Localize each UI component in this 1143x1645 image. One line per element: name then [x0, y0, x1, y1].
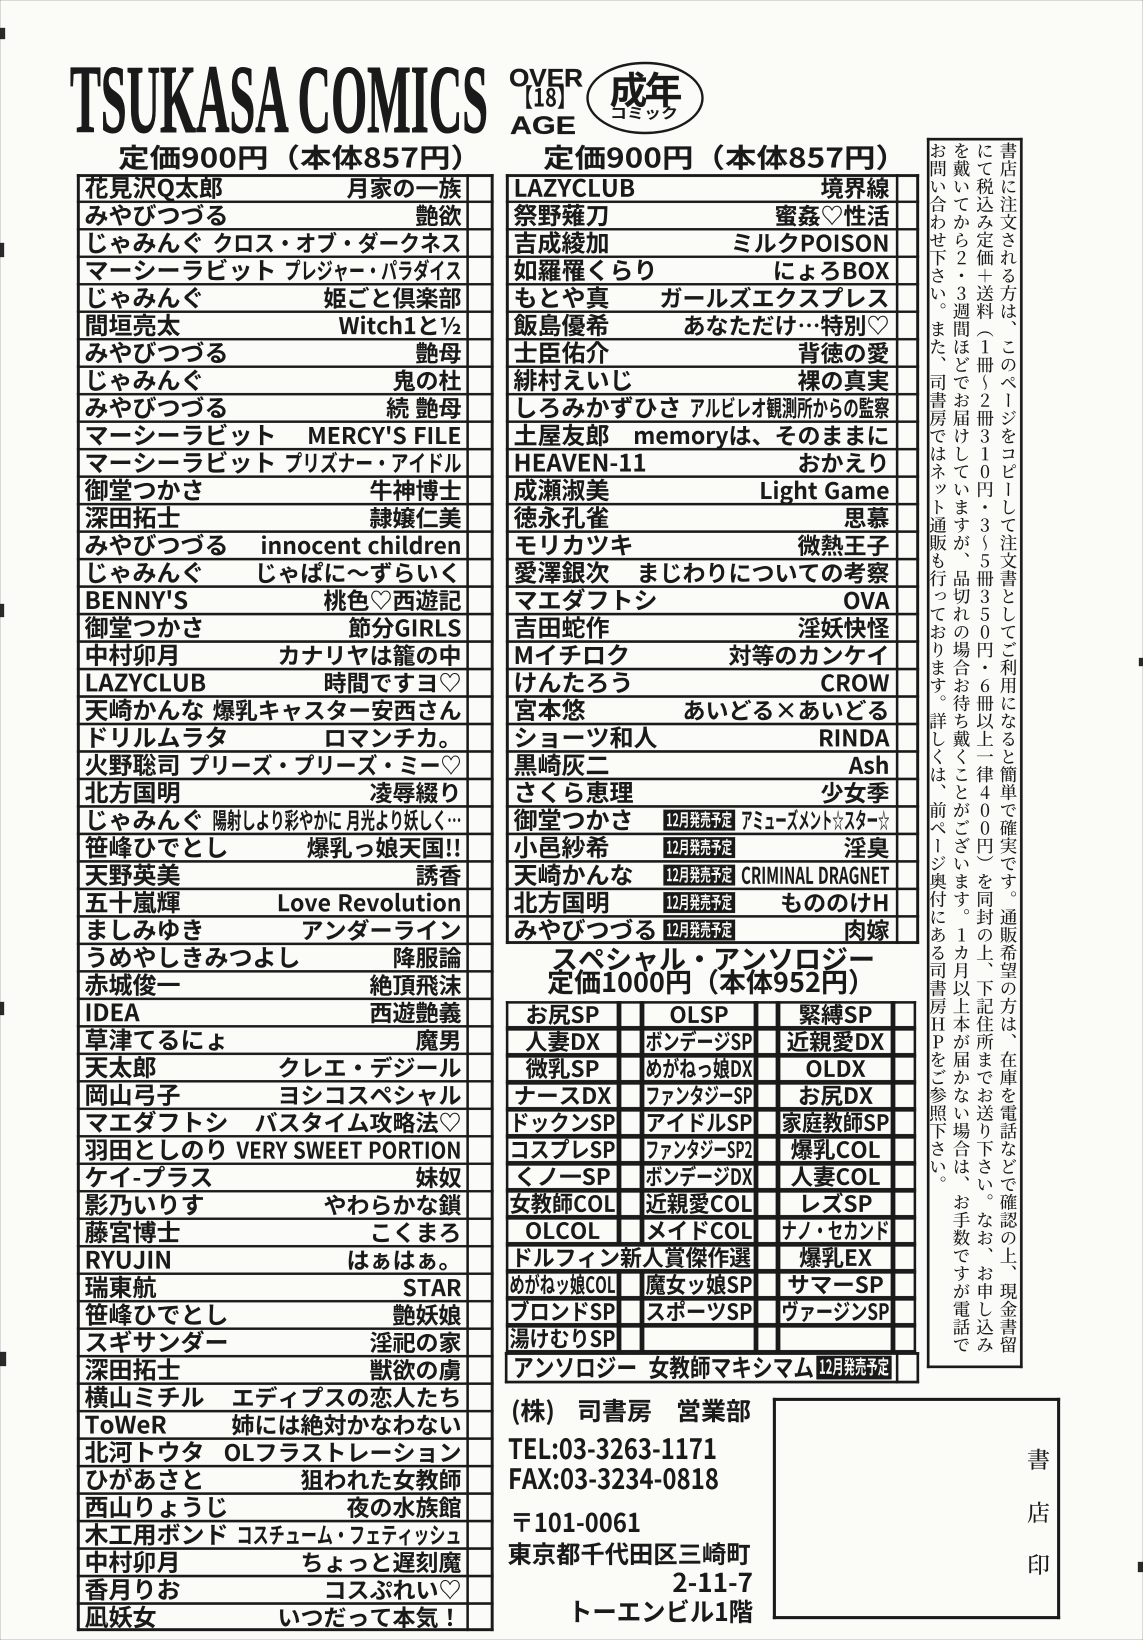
svg-text:AGE: AGE	[510, 112, 576, 140]
svg-text:TSUKASA COMICS: TSUKASA COMICS	[70, 46, 488, 153]
svg-text:OVER: OVER	[509, 65, 583, 93]
